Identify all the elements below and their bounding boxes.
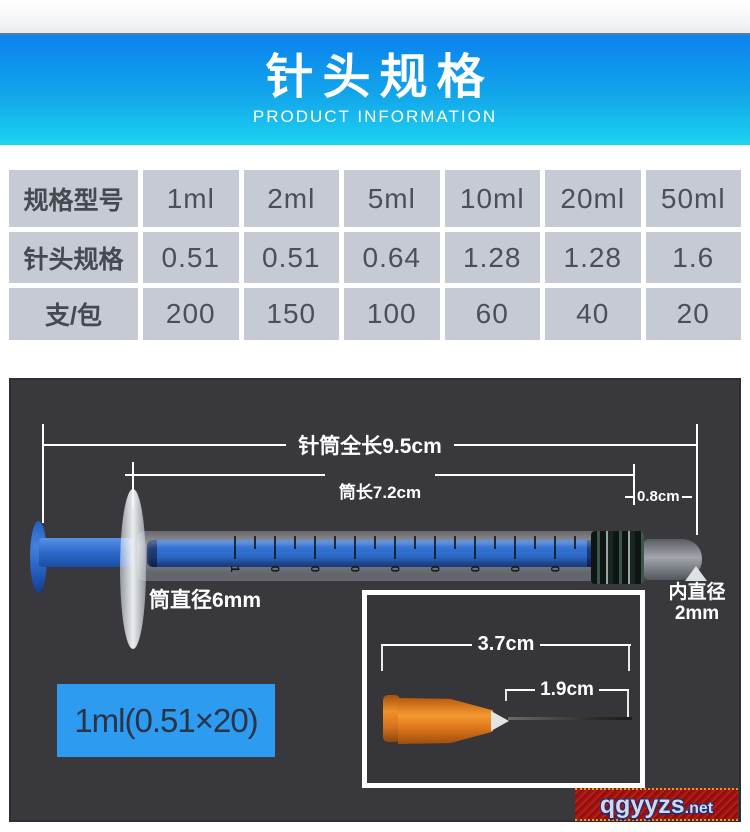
- spec-value-cell: 1.6: [646, 232, 742, 283]
- watermark-suffix: .net: [685, 800, 713, 818]
- scale-tick-minor: [254, 536, 256, 549]
- spec-value-cell: 100: [344, 288, 440, 340]
- scale-number: 0: [388, 561, 402, 577]
- scale-tick-major: [314, 536, 316, 559]
- site-watermark: qgyyzs .net: [575, 788, 738, 821]
- photo-panel: 针筒全长9.5cm 筒长7.2cm 0.8cm 1000000000 筒直径6m…: [9, 378, 741, 822]
- product-spec-label: 1ml(0.51×20): [57, 684, 275, 757]
- product-banner: 针头规格 PRODUCT INFORMATION: [0, 33, 750, 145]
- scale-tick-major: [474, 536, 476, 559]
- dim-line: [540, 644, 631, 646]
- inner-diameter-text: 内直径: [654, 582, 740, 603]
- table-spacer: [0, 145, 750, 170]
- scale-tick-major: [354, 536, 356, 559]
- scale-tick-minor: [494, 536, 496, 549]
- panel-spacer: [0, 340, 750, 378]
- spec-value-cell: 1.28: [545, 232, 641, 283]
- scale-tick-major: [554, 536, 556, 559]
- watermark-name: qgyyzs: [600, 790, 685, 820]
- dim-needle-exposed: 1.9cm: [505, 679, 629, 701]
- spec-value-cell: 20: [646, 288, 742, 340]
- scale-tick-minor: [414, 536, 416, 549]
- inner-diameter-label: 内直径 2mm: [654, 582, 740, 624]
- scale-tick-major: [274, 536, 276, 559]
- inner-diameter-value: 2mm: [654, 603, 740, 624]
- dim-line: [599, 689, 629, 691]
- dim-tick: [628, 645, 630, 671]
- spec-value-cell: 2ml: [244, 170, 340, 227]
- spec-row-label: 规格型号: [9, 170, 138, 227]
- scale-tick-minor: [574, 536, 576, 549]
- dim-line: [381, 644, 472, 646]
- scale-number: 0: [308, 561, 322, 577]
- scale-number: 0: [348, 561, 362, 577]
- scale-tick-minor: [374, 536, 376, 549]
- scale-number: 0: [508, 561, 522, 577]
- banner-subtitle: PRODUCT INFORMATION: [253, 107, 497, 127]
- dim-tick: [381, 645, 383, 671]
- scale-tick-major: [514, 536, 516, 559]
- scale-tick-major: [394, 536, 396, 559]
- scale-tick-major: [434, 536, 436, 559]
- spec-value-cell: 150: [244, 288, 340, 340]
- scale-number: 0: [428, 561, 442, 577]
- scale-tick-minor: [454, 536, 456, 549]
- scale-number: 1: [228, 561, 242, 577]
- spec-value-cell: 60: [445, 288, 541, 340]
- scale-tick-major: [234, 536, 236, 559]
- scale-number: 0: [468, 561, 482, 577]
- needle-hub-tip: [491, 711, 509, 731]
- spec-value-cell: 200: [143, 288, 239, 340]
- scale-number: 0: [268, 561, 282, 577]
- triangle-up-icon: [685, 566, 707, 581]
- scale-tick-minor: [294, 536, 296, 549]
- spec-row-label: 针头规格: [9, 232, 138, 283]
- banner-title: 针头规格: [256, 53, 493, 103]
- spec-value-cell: 0.51: [143, 232, 239, 283]
- barrel-rings: [591, 531, 644, 584]
- needle-hub: [398, 698, 493, 744]
- spec-value-cell: 5ml: [344, 170, 440, 227]
- scale-tick-minor: [534, 536, 536, 549]
- spec-value-cell: 0.64: [344, 232, 440, 283]
- needle-hub-flange: [383, 695, 400, 742]
- spec-value-cell: 1ml: [143, 170, 239, 227]
- spec-table: 规格型号1ml2ml5ml10ml20ml50ml针头规格0.510.510.6…: [9, 170, 741, 340]
- scale-number: 0: [548, 561, 562, 577]
- dim-needle-total: 3.7cm: [381, 633, 631, 656]
- dim-tick: [505, 691, 507, 701]
- top-strip: [0, 0, 750, 33]
- dim-needle-total-label: 3.7cm: [478, 633, 535, 656]
- dim-line: [505, 689, 535, 691]
- spec-value-cell: 1.28: [445, 232, 541, 283]
- dim-tick: [627, 691, 629, 719]
- barrel-diameter-label: 筒直径6mm: [149, 584, 261, 614]
- spec-value-cell: 40: [545, 288, 641, 340]
- dim-needle-exposed-label: 1.9cm: [540, 679, 594, 701]
- spec-value-cell: 50ml: [646, 170, 742, 227]
- spec-value-cell: 10ml: [445, 170, 541, 227]
- spec-row-label: 支/包: [9, 288, 138, 340]
- needle-shaft: [508, 717, 632, 720]
- spec-value-cell: 20ml: [545, 170, 641, 227]
- spec-value-cell: 0.51: [244, 232, 340, 283]
- scale-tick-minor: [334, 536, 336, 549]
- needle-inset: 3.7cm 1.9cm: [362, 590, 645, 788]
